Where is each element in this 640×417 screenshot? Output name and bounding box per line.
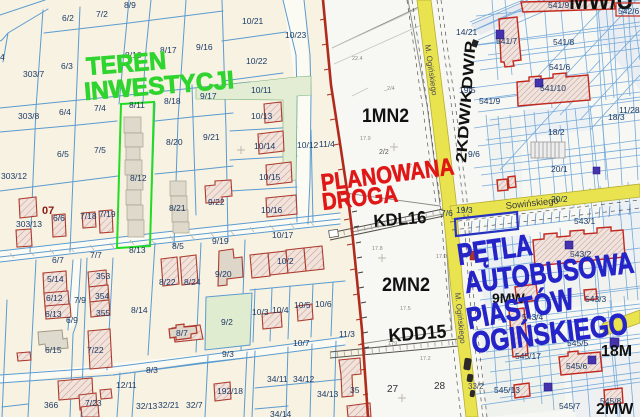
svg-text:4: 4 [0,52,5,62]
svg-text:10/4: 10/4 [272,305,289,315]
svg-text:543/3: 543/3 [585,294,607,304]
svg-text:541/10: 541/10 [540,83,566,93]
svg-text:541/7: 541/7 [496,36,518,46]
svg-text:10/15: 10/15 [259,172,281,182]
svg-text:7/19: 7/19 [99,209,116,219]
svg-text:355: 355 [96,308,110,318]
svg-text:9/16: 9/16 [196,42,213,52]
svg-text:17.2: 17.2 [420,356,431,362]
svg-text:10/12: 10/12 [297,140,319,150]
svg-text:303/12: 303/12 [1,171,27,181]
svg-text:6/12: 6/12 [46,293,63,303]
svg-text:545/8: 545/8 [600,396,622,406]
svg-text:5/14: 5/14 [47,274,64,284]
svg-text:6/7: 6/7 [52,255,64,265]
svg-text:541/8: 541/8 [553,37,575,47]
svg-text:34/12: 34/12 [293,374,315,384]
svg-text:18M: 18M [601,343,632,360]
svg-text:10/5: 10/5 [294,300,311,310]
svg-text:22.4: 22.4 [352,56,363,62]
svg-text:7/6: 7/6 [441,208,453,218]
svg-text:10/22: 10/22 [246,56,268,66]
svg-text:10/23: 10/23 [285,30,307,40]
svg-text:32/7: 32/7 [186,400,203,410]
svg-text:2/2: 2/2 [379,149,389,156]
svg-text:7/7: 7/7 [90,250,102,260]
svg-text:303/8: 303/8 [18,111,40,121]
svg-text:9/20: 9/20 [215,269,232,279]
svg-text:10/17: 10/17 [272,230,294,240]
svg-text:12/11: 12/11 [116,380,137,390]
svg-text:_2/4: _2/4 [383,86,395,92]
svg-text:545/6: 545/6 [566,361,588,371]
svg-text:541/6: 541/6 [549,62,571,72]
svg-text:7/22: 7/22 [87,345,104,355]
svg-text:8/21: 8/21 [169,203,186,213]
svg-text:32/21: 32/21 [158,400,180,410]
svg-text:8/22: 8/22 [159,277,176,287]
svg-text:6/6: 6/6 [53,213,65,223]
svg-text:18/2: 18/2 [548,127,565,137]
svg-text:17.8: 17.8 [372,246,383,252]
svg-text:7/9: 7/9 [74,295,86,305]
svg-text:19/3: 19/3 [456,205,473,215]
svg-text:9/3: 9/3 [222,349,234,359]
svg-text:6/13: 6/13 [45,309,62,319]
svg-text:9/2: 9/2 [221,317,233,327]
svg-text:34/13: 34/13 [317,389,339,399]
svg-text:6/3: 6/3 [61,61,73,71]
svg-text:366: 366 [44,400,58,410]
svg-text:7/5: 7/5 [94,145,106,155]
svg-text:20/2: 20/2 [551,194,568,204]
svg-text:7/23: 7/23 [85,398,102,408]
svg-text:33/2: 33/2 [468,382,484,391]
svg-text:354: 354 [95,291,109,301]
svg-text:8/3: 8/3 [146,365,158,375]
svg-text:545/7: 545/7 [559,401,581,411]
svg-text:9/6: 9/6 [468,149,480,159]
svg-text:07: 07 [42,205,54,217]
svg-text:19/5: 19/5 [459,85,476,95]
svg-text:6/2: 6/2 [62,13,74,23]
svg-text:8/24: 8/24 [184,277,201,287]
svg-text:192/18: 192/18 [217,386,243,396]
svg-text:2MN2: 2MN2 [382,275,430,296]
svg-text:9/22: 9/22 [208,197,225,207]
svg-text:541/9: 541/9 [479,96,501,106]
svg-text:8/20: 8/20 [166,137,183,147]
svg-text:20/1: 20/1 [551,164,568,174]
svg-text:7/18: 7/18 [80,211,97,221]
svg-text:8/13: 8/13 [129,245,146,255]
svg-text:10/2: 10/2 [277,256,294,266]
svg-text:KDL16: KDL16 [373,207,428,231]
svg-text:27: 27 [387,384,399,395]
svg-text:17.0: 17.0 [436,254,447,260]
svg-text:11/4: 11/4 [319,139,335,149]
svg-text:8/5: 8/5 [172,241,184,251]
svg-text:541/9: 541/9 [548,0,570,10]
svg-text:6/4: 6/4 [59,107,71,117]
svg-text:14/21: 14/21 [456,27,478,37]
svg-text:1MN2: 1MN2 [362,106,409,127]
svg-text:6/5: 6/5 [57,149,69,159]
svg-text:17.5: 17.5 [400,306,411,312]
svg-text:34/14: 34/14 [270,409,292,417]
svg-text:10/16: 10/16 [261,205,283,215]
svg-text:10/11: 10/11 [251,85,272,95]
svg-text:6/9: 6/9 [66,315,78,325]
svg-text:8/9: 8/9 [124,0,136,10]
svg-text:10/7: 10/7 [293,338,310,348]
svg-text:542/6: 542/6 [618,6,640,16]
svg-text:10/21: 10/21 [242,16,264,26]
svg-text:17.9: 17.9 [360,136,371,142]
svg-text:10/13: 10/13 [251,111,273,121]
svg-text:303/13: 303/13 [16,219,42,229]
svg-text:9/21: 9/21 [203,132,220,142]
svg-text:32/13: 32/13 [136,401,158,411]
svg-text:543/1: 543/1 [574,216,596,226]
svg-text:6/15: 6/15 [45,345,62,355]
svg-text:10/3: 10/3 [252,307,269,317]
svg-text:28: 28 [434,381,446,392]
svg-text:8/7: 8/7 [176,328,188,338]
svg-text:9/19: 9/19 [212,236,229,246]
svg-text:303/7: 303/7 [23,69,45,79]
svg-text:7/2: 7/2 [96,9,108,19]
svg-text:545/13: 545/13 [494,385,520,395]
svg-text:34/11: 34/11 [267,374,288,384]
svg-text:10/14: 10/14 [254,141,276,151]
svg-text:35: 35 [350,385,360,395]
svg-text:18/3: 18/3 [608,112,625,122]
svg-text:10/6: 10/6 [315,299,332,309]
svg-text:353: 353 [96,271,110,281]
svg-text:11/3: 11/3 [339,329,355,339]
svg-text:8/12: 8/12 [130,173,147,183]
svg-text:8/14: 8/14 [131,305,148,315]
